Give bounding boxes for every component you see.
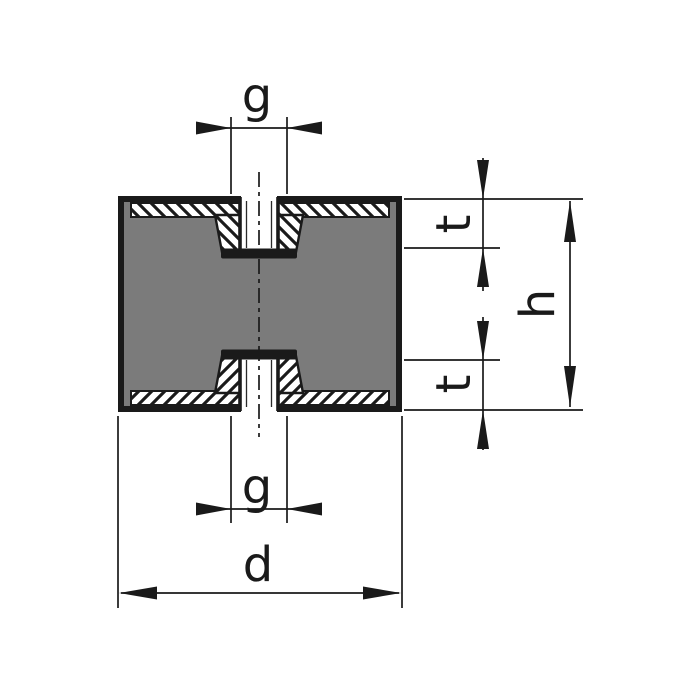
arrowhead [477, 321, 489, 360]
arrowhead [287, 122, 322, 135]
arrowhead [477, 410, 489, 449]
dimension-t-bottom: t [426, 317, 489, 450]
buffer-cross-section-svg: g g d t t h [0, 0, 700, 700]
dimension-h: h [510, 201, 576, 407]
arrowhead [477, 248, 489, 287]
label-d: d [243, 537, 273, 593]
technical-drawing-rubber-buffer: g g d t t h [0, 0, 700, 700]
arrowhead [363, 587, 401, 600]
arrowhead [287, 503, 322, 516]
dimension-t-top: t [426, 158, 489, 291]
label-t-bottom: t [426, 375, 482, 394]
arrowhead [477, 160, 489, 199]
label-h: h [510, 289, 566, 319]
arrowhead [564, 366, 576, 407]
arrowhead [119, 587, 157, 600]
dimension-g-bottom: g [196, 416, 322, 523]
label-t-top: t [426, 215, 482, 234]
label-g-bottom: g [242, 459, 272, 515]
arrowhead [196, 122, 231, 135]
arrowhead [196, 503, 231, 516]
arrowhead [564, 201, 576, 242]
buffer-body [118, 172, 402, 437]
label-g-top: g [242, 68, 272, 124]
